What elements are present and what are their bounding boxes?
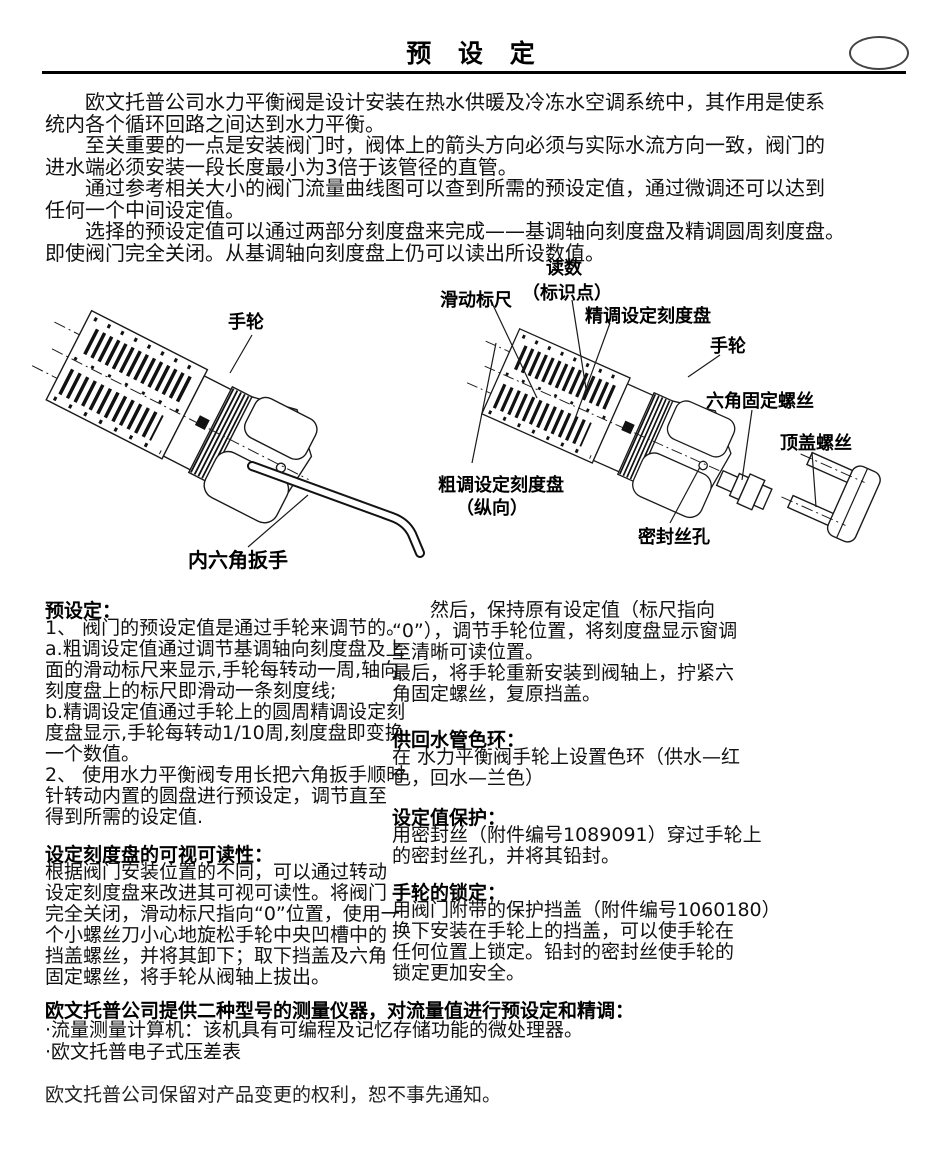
- label-seal-wire-hole: 密封丝孔: [638, 523, 710, 549]
- label-top-cover-screw: 顶盖螺丝: [780, 429, 852, 455]
- preset-body: 1、 阀门的预设定值是通过手轮来调节的。a.粗调设定值通过调节基调轴向刻度盘及上…: [45, 618, 405, 828]
- setting-protection-body: 用密封丝（附件编号1089091）穿过手轮上的密封丝孔，并将其铅封。: [392, 825, 762, 867]
- label-coarse-dial-sub: （纵向）: [456, 494, 528, 520]
- page-title: 预 设 定: [0, 34, 950, 70]
- label-sliding-scale: 滑动标尺: [440, 286, 512, 312]
- label-allen-key: 内六角扳手: [188, 544, 288, 573]
- label-fine-dial: 精调设定刻度盘: [585, 302, 711, 328]
- readability-body: 根据阀门安装位置的不同，可以通过转动设定刻度盘来改进其可视可读性。将阀门完全关闭…: [45, 862, 400, 988]
- label-reading: 读数: [546, 254, 582, 280]
- label-hex-set-screw: 六角固定螺丝: [706, 387, 814, 413]
- then-paragraph: 然后，保持原有设定值（标尺指向“0”），调节手轮位置，将刻度盘显示窗调至清晰可读…: [392, 600, 737, 705]
- title-divider: [42, 71, 906, 74]
- handwheel-locking-body: 用阀门附带的保护挡盖（附件编号1060180）换下安装在手轮上的挡盖，可以使手轮…: [392, 900, 781, 984]
- instruments-bullets: ·流量测量计算机：该机具有可编程及记忆存储功能的微处理器。·欧文托普电子式压差表: [45, 1019, 583, 1063]
- cover-cap-drawing: [775, 441, 883, 545]
- logo-ellipse-icon: [849, 36, 909, 70]
- label-handwheel-right: 手轮: [710, 332, 746, 358]
- footer-note: 欧文托普公司保留对产品变更的权利，恕不事先通知。: [45, 1080, 501, 1107]
- intro-paragraph: 欧文托普公司水力平衡阀是设计安装在热水供暖及冷冻水空调系统中，其作用是使系统内各…: [45, 92, 915, 264]
- color-rings-body: 在 水力平衡阀手轮上设置色环（供水—红色，回水—兰色）: [392, 747, 740, 789]
- label-handwheel-left: 手轮: [228, 308, 264, 334]
